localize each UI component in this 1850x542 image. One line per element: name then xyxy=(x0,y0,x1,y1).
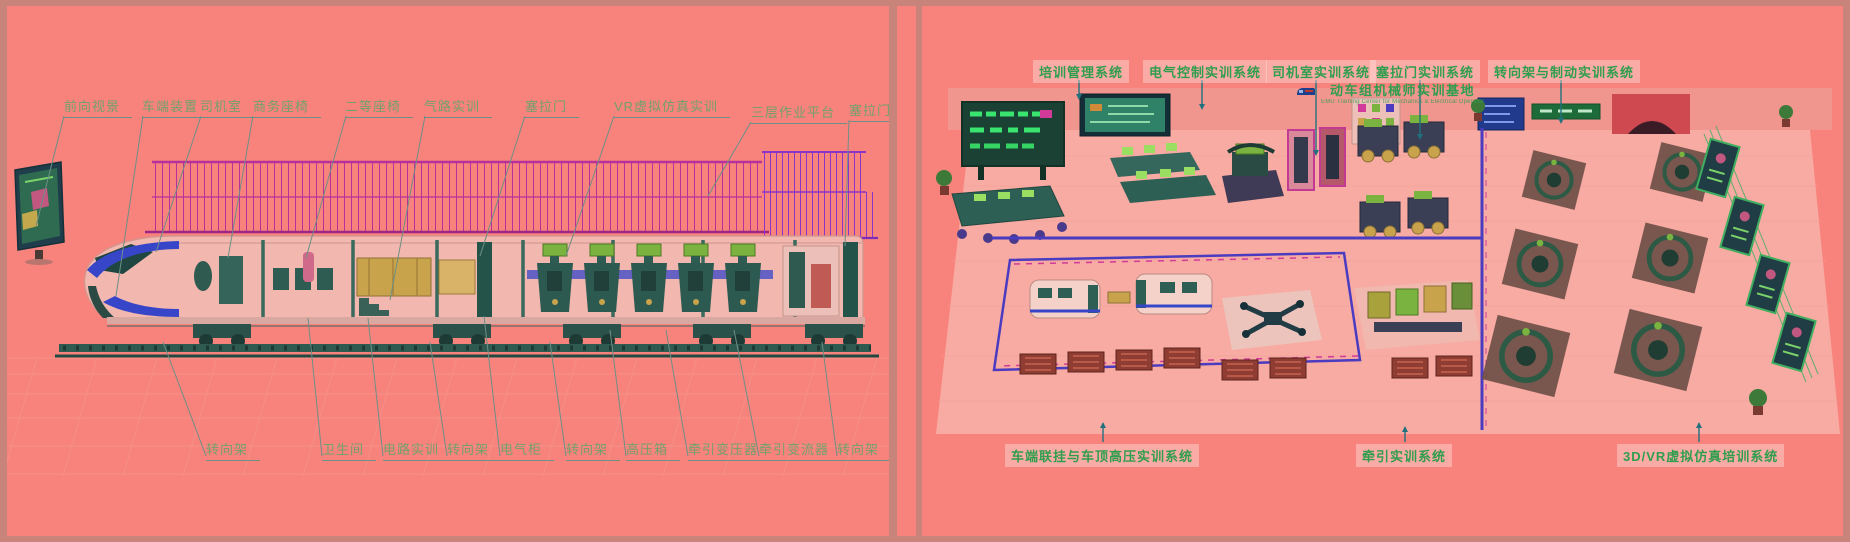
label-driver-cab: 司机室 xyxy=(200,100,254,118)
panel-divider-right xyxy=(916,0,922,542)
label-vr-simulation: VR虚拟仿真实训 xyxy=(614,100,730,118)
emu-logo-icon xyxy=(1296,84,1316,98)
label-driver-cab-system: 司机室实训系统 xyxy=(1266,60,1376,83)
label-plug-door-right: 塞拉门 xyxy=(849,104,889,122)
frame-top xyxy=(0,0,1850,6)
label-business-seats: 商务座椅 xyxy=(253,100,321,118)
label-hv-box: 高压箱 xyxy=(626,443,680,461)
label-bogie-brake-system: 转向架与制动实训系统 xyxy=(1488,60,1640,83)
label-bogie-1: 转向架 xyxy=(206,443,260,461)
label-bogie-3: 转向架 xyxy=(566,443,620,461)
label-bogie-2: 转向架 xyxy=(447,443,501,461)
left-panel-train-cutaway: 前向视景 车端装置 司机室 商务座椅 二等座椅 气路实训 塞拉门 VR虚拟仿真实… xyxy=(7,6,889,536)
panel-divider-left xyxy=(889,0,897,542)
label-3dvr-training-system: 3D/VR虚拟仿真培训系统 xyxy=(1617,444,1784,467)
label-traction-system: 牵引实训系统 xyxy=(1356,444,1452,467)
label-forward-view: 前向视景 xyxy=(64,100,132,118)
frame-right xyxy=(1843,0,1850,542)
facility-subtitle: EMU Training Center for Mechanics & Elec… xyxy=(1321,99,1484,105)
label-circuit-training: 电路实训 xyxy=(383,443,451,461)
frame-bottom xyxy=(0,536,1850,542)
label-plug-door-system: 塞拉门实训系统 xyxy=(1370,60,1480,83)
label-coupling-hv-system: 车端联挂与车顶高压实训系统 xyxy=(1005,444,1199,467)
facility-title: 动车组机械师实训基地 xyxy=(1330,84,1475,97)
label-pneumatic-training: 气路实训 xyxy=(424,100,492,118)
label-training-management-system: 培训管理系统 xyxy=(1033,60,1129,83)
label-plug-door-top: 塞拉门 xyxy=(525,100,579,118)
label-traction-transformer: 牵引变压器 xyxy=(688,443,770,461)
frame-left xyxy=(0,0,7,542)
label-electrical-control-system: 电气控制实训系统 xyxy=(1143,60,1267,83)
label-second-class-seats: 二等座椅 xyxy=(345,100,413,118)
label-bogie-4: 转向架 xyxy=(837,443,889,461)
label-toilet: 卫生间 xyxy=(322,443,376,461)
label-work-platform: 三层作业平台 xyxy=(751,106,847,124)
facility-title-block: 动车组机械师实训基地 EMU Training Center for Mecha… xyxy=(1296,84,1484,105)
label-traction-converter: 牵引变流器 xyxy=(759,443,841,461)
label-electric-cabinet: 电气柜 xyxy=(500,443,554,461)
figure-root: 前向视景 车端装置 司机室 商务座椅 二等座椅 气路实训 塞拉门 VR虚拟仿真实… xyxy=(0,0,1850,542)
right-panel-training-base: 培训管理系统 电气控制实训系统 司机室实训系统 塞拉门实训系统 转向架与制动实训… xyxy=(922,6,1843,536)
